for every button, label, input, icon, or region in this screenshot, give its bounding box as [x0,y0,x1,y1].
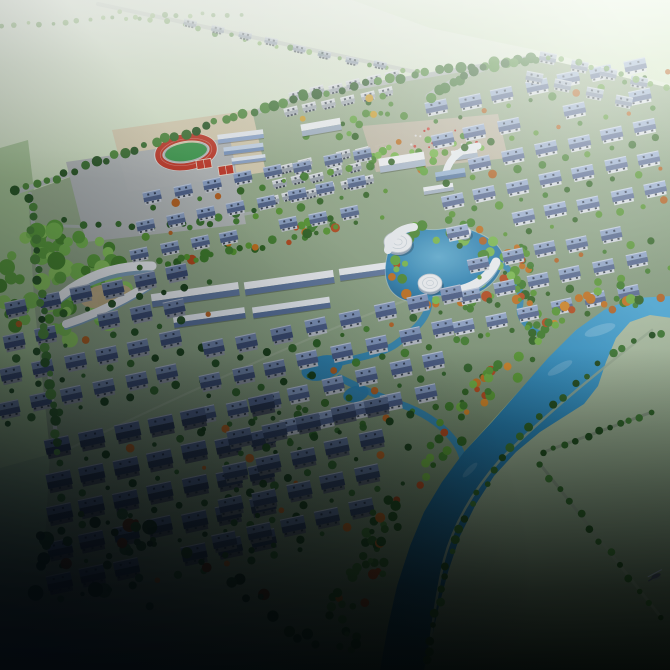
aerial-masterplan-rendering [0,0,670,670]
vignette-corner-southwest [0,0,670,670]
scene-canvas [0,0,670,670]
